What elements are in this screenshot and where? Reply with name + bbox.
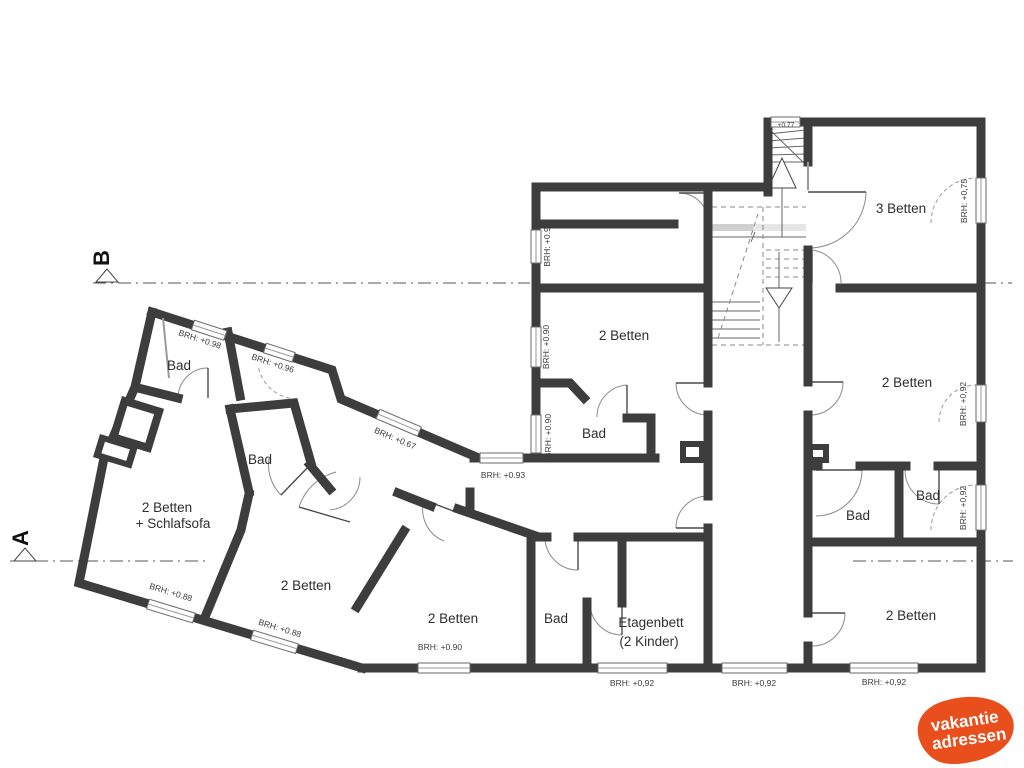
window (480, 453, 523, 463)
window (418, 663, 470, 673)
window (976, 485, 986, 530)
brh-label: BRH: +0,92 (958, 486, 968, 530)
room-label: 2 Betten (142, 500, 192, 515)
floor-plan-page: B A 3 Betten2 Betten2 BettenBadBadBad2 B… (0, 0, 1024, 768)
window (722, 663, 787, 673)
window (531, 327, 541, 367)
room-label: Bad (167, 358, 191, 373)
stair-landing-shade (753, 224, 806, 231)
room-label: Etagenbett (618, 615, 684, 630)
section-letter-b: B (89, 250, 114, 266)
window (850, 663, 918, 673)
section-marker-b: B (89, 250, 118, 282)
room-label: 2 Betten (599, 328, 649, 343)
shaft (93, 396, 826, 469)
staircase (710, 128, 806, 345)
duct-box (810, 447, 826, 460)
door-leaves (208, 192, 939, 635)
window (147, 599, 196, 623)
section-triangle-b (96, 269, 118, 282)
window-swing-arcs (258, 178, 976, 530)
stair-landing-shade (710, 224, 753, 231)
window (976, 385, 986, 422)
windows (147, 117, 986, 673)
room-label: Bad (846, 508, 870, 523)
room-label: 2 Betten (882, 375, 932, 390)
section-marker-a: A (8, 530, 36, 561)
window (598, 663, 667, 673)
stair-down-arrow (766, 288, 792, 308)
section-letter-a: A (8, 530, 33, 546)
brh-label: BRH: +0.93 (481, 470, 525, 480)
brh-label: BRH: +0.90 (418, 642, 462, 652)
brh-label: BRH: +0.9 (542, 227, 552, 267)
brh-label: BRH: +0,92 (862, 677, 906, 687)
brh-label: BRH: +0,92 (732, 678, 776, 688)
room-label: Bad (916, 488, 940, 503)
walls (79, 122, 981, 668)
brh-label: +0.77 (778, 122, 795, 129)
room-label: + Schlafsofa (136, 516, 211, 531)
floor-plan-svg: B A 3 Betten2 Betten2 BettenBadBadBad2 B… (0, 0, 1024, 768)
stair-treads (712, 128, 806, 342)
room-label: 2 Betten (428, 611, 478, 626)
brh-label: BRH: +0,92 (610, 678, 654, 688)
window (531, 415, 541, 453)
logo: vakantie adressen (915, 692, 1018, 767)
room-label: 2 Betten (886, 608, 936, 623)
room-label: (2 Kinder) (619, 634, 678, 649)
room-label: 3 Betten (876, 201, 926, 216)
brh-label: BRH: +0,75 (959, 179, 969, 223)
room-label: Bad (544, 611, 568, 626)
room-label: Bad (582, 426, 606, 441)
brh-label: BRH: +0.88 (148, 581, 193, 604)
room-label: Bad (248, 452, 272, 467)
window (976, 178, 986, 223)
duct-box (683, 444, 702, 460)
brh-label: BRH: +0.90 (543, 414, 553, 458)
section-triangle-a (14, 548, 36, 561)
brh-label: BRH: +0.90 (541, 325, 551, 369)
brh-label: BRH: +0,92 (958, 382, 968, 426)
window (531, 230, 541, 263)
room-label: 2 Betten (281, 578, 331, 593)
